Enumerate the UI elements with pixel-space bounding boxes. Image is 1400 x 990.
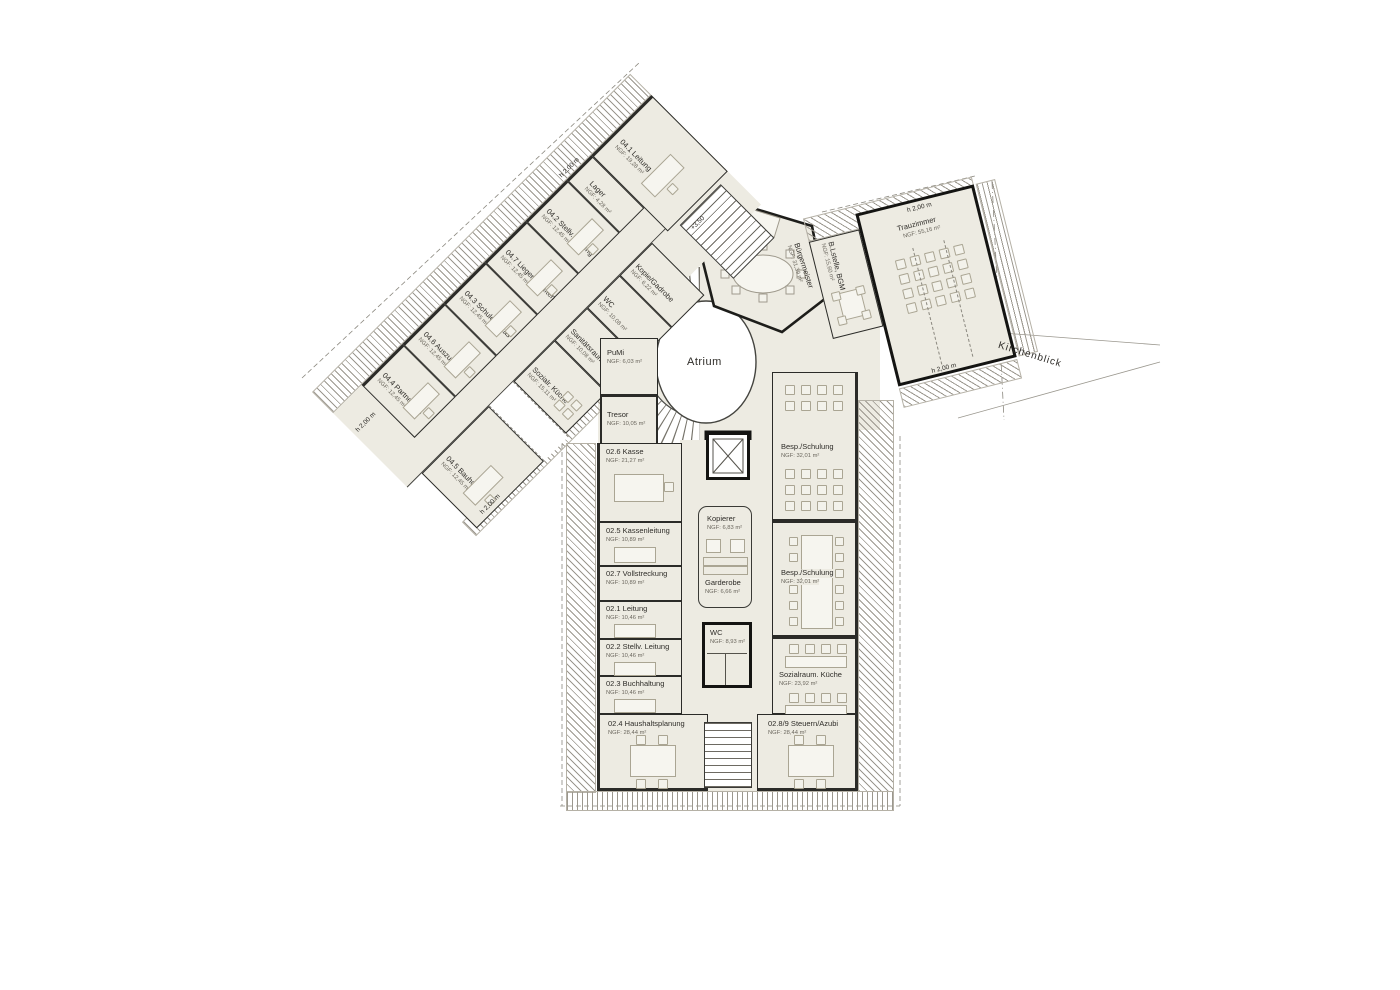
chair — [833, 401, 843, 411]
chair — [801, 485, 811, 495]
chair — [833, 469, 843, 479]
chair — [957, 258, 969, 270]
chair — [817, 469, 827, 479]
chair — [931, 280, 943, 292]
chair — [805, 644, 815, 654]
chair — [835, 617, 844, 626]
chair — [789, 585, 798, 594]
chair — [895, 258, 907, 270]
chair — [801, 501, 811, 511]
chair — [960, 273, 972, 285]
chair — [835, 585, 844, 594]
chair — [816, 735, 826, 745]
desk — [614, 547, 656, 563]
chair — [658, 779, 668, 789]
room-02-8-9-steuern-azubi: 02.8/9 Steuern/Azubi NGF: 28,44 m² — [757, 714, 858, 791]
room-02-2-stellv-leitung: 02.2 Stellv. Leitung NGF: 10,46 m² — [597, 639, 682, 676]
chair — [785, 469, 795, 479]
atrium-label: Atrium — [687, 356, 722, 368]
chair — [785, 385, 795, 395]
chair — [801, 401, 811, 411]
chair — [794, 735, 804, 745]
chair — [837, 315, 848, 326]
chair — [658, 735, 668, 745]
chair — [821, 644, 831, 654]
desk — [614, 474, 664, 502]
shelf — [703, 557, 748, 566]
chair — [835, 537, 844, 546]
chair — [816, 779, 826, 789]
chair — [833, 501, 843, 511]
chair — [785, 501, 795, 511]
chair — [636, 779, 646, 789]
stair-lower — [704, 722, 752, 788]
roof-hatch-south-left — [566, 443, 596, 793]
table — [785, 656, 847, 668]
chair — [789, 553, 798, 562]
chair — [833, 385, 843, 395]
room-02-5-kassenleitung: 02.5 Kassenleitung NGF: 10,89 m² — [597, 522, 682, 566]
chair — [837, 693, 847, 703]
chair — [821, 693, 831, 703]
desk — [614, 699, 656, 713]
chair — [902, 287, 914, 299]
room-besp-schulung-1: Besp./Schulung NGF: 32,01 m² — [772, 372, 858, 520]
chair — [855, 285, 866, 296]
chair — [664, 482, 674, 492]
chair — [898, 273, 910, 285]
room-02-1-leitung: 02.1 Leitung NGF: 10,46 m² — [597, 601, 682, 639]
room-02-7-vollstreckung: 02.7 Vollstreckung NGF: 10,89 m² — [597, 566, 682, 601]
chair — [833, 485, 843, 495]
shelf — [703, 566, 748, 575]
room-besp-schulung-2: Besp./Schulung NGF: 32,01 m² — [772, 520, 858, 636]
chair — [835, 569, 844, 578]
chair — [935, 295, 947, 307]
room-02-3-buchhaltung: 02.3 Buchhaltung NGF: 10,46 m² — [597, 676, 682, 714]
chair — [817, 401, 827, 411]
chair — [953, 244, 965, 256]
table — [788, 745, 834, 777]
chair — [789, 537, 798, 546]
chair — [789, 693, 799, 703]
chair — [636, 735, 646, 745]
room-02-4-haushaltsplanung: 02.4 Haushaltsplanung NGF: 28,44 m² — [597, 714, 708, 791]
elevator-shaft — [706, 432, 750, 480]
chair — [964, 287, 976, 299]
copier — [706, 539, 721, 553]
desk — [614, 624, 656, 638]
roof-hatch-south-bottom — [566, 791, 894, 811]
chair — [801, 469, 811, 479]
room-02-6-kasse: 02.6 Kasse NGF: 21,27 m² — [597, 443, 682, 522]
chair — [861, 309, 872, 320]
chair — [789, 644, 799, 654]
room-pumi: PuMi NGF: 6,03 m² — [600, 338, 658, 395]
stall-divider — [725, 653, 726, 685]
desk — [614, 662, 656, 676]
chair — [817, 485, 827, 495]
room-sozialraum-kueche: Sozialraum. Küche NGF: 23,92 m² — [772, 636, 858, 714]
chair — [835, 553, 844, 562]
core-kopierer-garderobe: Kopierer NGF: 6,83 m² Garderobe NGF: 6,6… — [698, 506, 752, 608]
stall-divider — [707, 653, 747, 654]
chair — [794, 779, 804, 789]
copier — [730, 539, 745, 553]
chair — [789, 601, 798, 610]
floor-plan: 04.4 Partnersch. NGF: 12,45 m² 04.6 Ausz… — [0, 0, 1400, 990]
room-core-wc: WC NGF: 8,93 m² — [702, 622, 752, 688]
chair — [817, 385, 827, 395]
table — [630, 745, 676, 777]
chair — [785, 485, 795, 495]
chair — [817, 501, 827, 511]
room-tresor: Tresor NGF: 10,05 m² — [600, 395, 658, 445]
chair — [785, 401, 795, 411]
chair — [924, 251, 936, 263]
chair — [805, 693, 815, 703]
chair — [801, 385, 811, 395]
height-label-trauzimmer: h 2,00 m — [906, 201, 932, 214]
chair — [906, 302, 918, 314]
chair — [835, 601, 844, 610]
chair — [837, 644, 847, 654]
roof-hatch-south-right — [858, 400, 894, 792]
chair — [928, 266, 940, 278]
chair — [789, 617, 798, 626]
